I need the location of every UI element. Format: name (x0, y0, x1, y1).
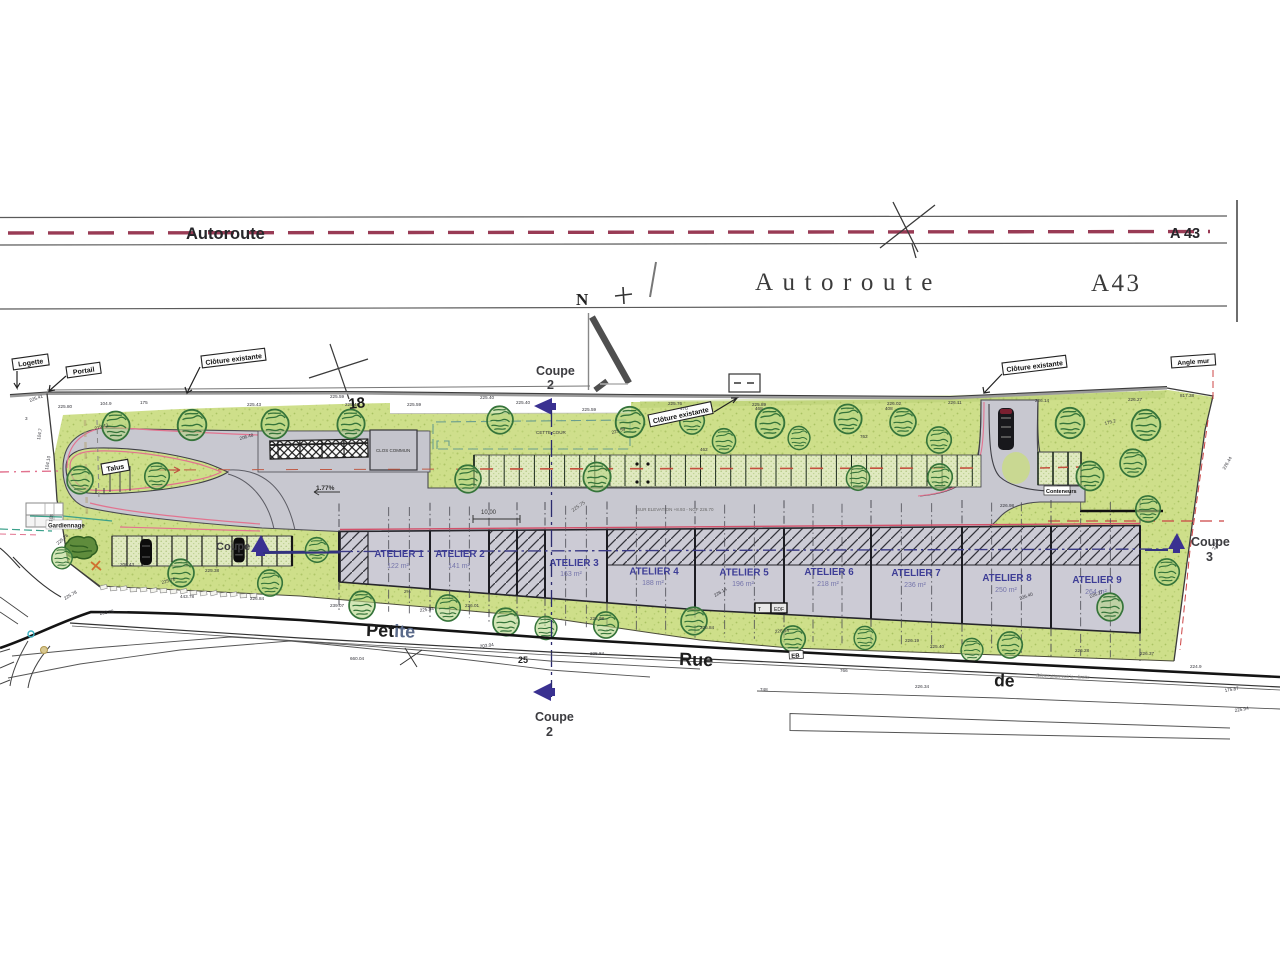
svg-text:1.77%: 1.77% (316, 485, 335, 492)
svg-text:225.59: 225.59 (582, 407, 596, 412)
svg-text:122 m²: 122 m² (387, 563, 409, 570)
svg-text:225.40: 225.40 (516, 400, 530, 405)
svg-text:766: 766 (840, 668, 848, 673)
svg-text:Coupe: Coupe (535, 710, 574, 724)
svg-text:175: 175 (140, 400, 148, 405)
svg-text:226.37: 226.37 (1140, 651, 1154, 656)
svg-text:408: 408 (885, 406, 893, 411)
svg-text:ATELIER 9: ATELIER 9 (1072, 575, 1122, 586)
svg-text:762: 762 (860, 434, 868, 439)
svg-text:ATELIER 7: ATELIER 7 (891, 568, 941, 579)
svg-text:Rue: Rue (679, 649, 714, 670)
svg-text:18: 18 (348, 394, 366, 413)
svg-text:226.14: 226.14 (1035, 398, 1049, 403)
svg-text:748: 748 (760, 687, 768, 692)
svg-text:ATELIER 3: ATELIER 3 (549, 558, 599, 569)
svg-text:ATELIER 1: ATELIER 1 (374, 549, 424, 560)
svg-text:226.34: 226.34 (915, 684, 929, 689)
svg-text:ATELIER 5: ATELIER 5 (719, 568, 769, 579)
svg-text:2: 2 (546, 725, 553, 739)
svg-text:Autoroute: Autoroute (755, 269, 942, 296)
svg-text:188 m²: 188 m² (642, 580, 664, 587)
svg-text:25: 25 (518, 655, 528, 665)
svg-text:225.84: 225.84 (590, 651, 604, 656)
svg-text:ATELIER 8: ATELIER 8 (982, 573, 1032, 584)
svg-text:Conteneurs: Conteneurs (1046, 489, 1077, 495)
svg-text:817.38: 817.38 (1180, 393, 1194, 398)
svg-text:SUR ELEVATION +8.93 - NGF 226.: SUR ELEVATION +8.93 - NGF 226.70 (637, 507, 714, 512)
svg-text:226.84: 226.84 (700, 625, 714, 630)
svg-text:Gardiennage: Gardiennage (48, 524, 85, 530)
svg-text:2%: 2% (404, 589, 411, 594)
svg-text:3: 3 (25, 416, 28, 421)
svg-text:218 m²: 218 m² (817, 581, 839, 588)
svg-text:226.11: 226.11 (948, 400, 962, 405)
svg-text:226.19: 226.19 (905, 638, 919, 643)
svg-text:470: 470 (680, 406, 688, 411)
svg-text:225.59: 225.59 (407, 402, 421, 407)
svg-text:239.07: 239.07 (330, 603, 344, 608)
svg-text:141 m²: 141 m² (448, 563, 470, 570)
svg-text:462: 462 (700, 447, 708, 452)
svg-text:ATELIER 6: ATELIER 6 (804, 567, 854, 578)
svg-text:443.78: 443.78 (180, 594, 194, 599)
svg-text:2: 2 (547, 378, 554, 392)
svg-text:EDF: EDF (774, 607, 784, 613)
svg-text:250 m²: 250 m² (995, 587, 1017, 594)
svg-text:224.9: 224.9 (1190, 664, 1202, 669)
svg-text:N: N (576, 290, 589, 309)
svg-text:CLOS COMMUN: CLOS COMMUN (376, 448, 410, 453)
svg-text:226.28: 226.28 (1075, 648, 1089, 653)
svg-text:ATELIER 2: ATELIER 2 (435, 549, 485, 560)
svg-text:Coupe: Coupe (1191, 535, 1230, 549)
svg-text:Petite: Petite (366, 620, 416, 642)
svg-text:CETTE COUR: CETTE COUR (536, 430, 567, 435)
svg-text:206.43: 206.43 (120, 562, 134, 567)
svg-text:225.80: 225.80 (58, 404, 72, 409)
svg-text:225.43: 225.43 (247, 402, 261, 407)
svg-text:226.98: 226.98 (1000, 503, 1014, 508)
svg-text:225.40: 225.40 (480, 395, 494, 400)
svg-text:660.04: 660.04 (350, 656, 364, 661)
svg-text:Coupe: Coupe (216, 541, 250, 553)
svg-text:A 43: A 43 (1170, 226, 1200, 242)
svg-text:T: T (758, 607, 761, 613)
svg-text:225.38: 225.38 (205, 568, 219, 573)
svg-text:de: de (994, 670, 1015, 691)
svg-text:225.59: 225.59 (330, 394, 344, 399)
svg-text:Coupe: Coupe (536, 364, 575, 378)
svg-text:226.84: 226.84 (250, 596, 264, 601)
svg-text:A43: A43 (1091, 270, 1142, 297)
svg-text:468: 468 (755, 406, 763, 411)
svg-text:EB: EB (791, 653, 800, 659)
svg-text:196 m²: 196 m² (732, 581, 754, 588)
svg-text:226.27: 226.27 (1128, 397, 1142, 402)
svg-text:225.40: 225.40 (930, 644, 944, 649)
svg-text:104.9: 104.9 (100, 401, 112, 406)
svg-text:Autoroute: Autoroute (186, 225, 265, 243)
svg-text:236 m²: 236 m² (904, 582, 926, 589)
svg-text:226.01: 226.01 (465, 603, 479, 608)
svg-text:3: 3 (1206, 550, 1213, 564)
svg-text:10.00: 10.00 (481, 510, 497, 516)
svg-text:ATELIER 4: ATELIER 4 (629, 567, 679, 578)
svg-text:163 m²: 163 m² (560, 571, 582, 578)
svg-text:225.98: 225.98 (590, 616, 604, 621)
